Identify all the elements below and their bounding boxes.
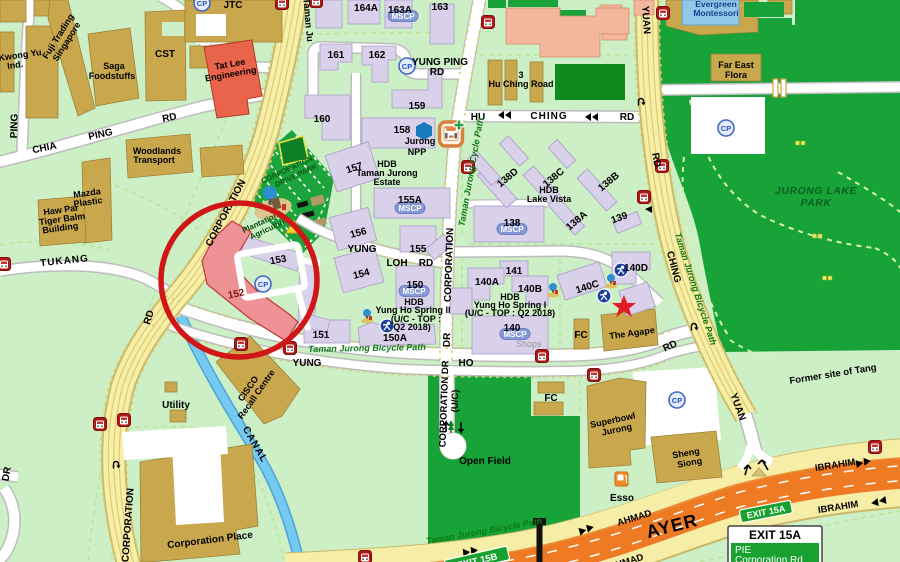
svg-text:EXIT 15A: EXIT 15A [749,528,801,542]
svg-text:Open Field: Open Field [459,456,511,467]
svg-text:141: 141 [506,266,523,277]
svg-text:Hu Ching Road: Hu Ching Road [489,79,554,89]
svg-text:151: 151 [313,330,330,341]
svg-text:Q2 2018): Q2 2018) [393,322,431,332]
svg-text:PARK: PARK [801,197,833,209]
svg-text:RD: RD [419,258,433,269]
svg-text:163: 163 [432,2,449,13]
svg-text:RD: RD [620,112,634,123]
svg-text:Montessori: Montessori [693,8,738,18]
svg-text:162: 162 [369,50,386,61]
svg-text:CST: CST [155,49,175,60]
svg-text:FC: FC [544,393,557,404]
svg-text:140B: 140B [518,284,542,295]
svg-text:FC: FC [574,330,587,341]
svg-text:160: 160 [314,114,331,125]
svg-text:155: 155 [410,244,427,255]
svg-text:163A: 163A [388,5,412,16]
svg-text:YUNG: YUNG [293,358,322,369]
svg-text:NPP: NPP [408,147,427,157]
svg-text:Utility: Utility [162,400,190,411]
svg-text:161: 161 [328,50,345,61]
svg-text:Transport: Transport [133,155,175,165]
svg-text:CHING: CHING [530,111,567,122]
svg-text:150: 150 [407,280,424,291]
svg-text:Foodstuffs: Foodstuffs [89,71,136,81]
svg-text:Saga: Saga [103,61,126,71]
svg-text:YUAN: YUAN [639,6,652,35]
svg-text:DR: DR [442,332,454,348]
svg-text:JTC: JTC [224,0,243,11]
svg-text:140: 140 [504,323,521,334]
svg-text:JURONG LAKE: JURONG LAKE [775,185,857,197]
svg-text:140D: 140D [624,263,648,274]
svg-text:Shops: Shops [516,339,542,349]
svg-text:138: 138 [504,218,521,229]
svg-text:Jurong: Jurong [405,136,436,146]
svg-text:YUNG: YUNG [348,244,377,255]
svg-text:140A: 140A [475,277,499,288]
svg-text:158: 158 [394,125,411,136]
svg-text:Taman Jurong Bicycle Path: Taman Jurong Bicycle Path [308,342,426,354]
svg-text:RD: RD [430,67,444,78]
svg-text:HO: HO [459,358,474,369]
svg-text:Estate: Estate [373,177,400,187]
svg-text:Corporation Rd: Corporation Rd [735,555,803,562]
svg-text:Esso: Esso [610,493,634,504]
svg-text:159: 159 [409,101,426,112]
svg-text:164A: 164A [354,3,378,14]
svg-text:(U/C - TOP : Q2 2018): (U/C - TOP : Q2 2018) [465,308,555,318]
svg-text:155A: 155A [398,195,422,206]
svg-text:Flora: Flora [725,70,748,80]
svg-text:Far East: Far East [718,60,754,70]
svg-text:(U/C): (U/C) [450,389,462,412]
svg-text:LOH: LOH [386,258,407,269]
svg-text:Lake Vista: Lake Vista [527,194,572,204]
svg-text:PING: PING [9,113,21,138]
